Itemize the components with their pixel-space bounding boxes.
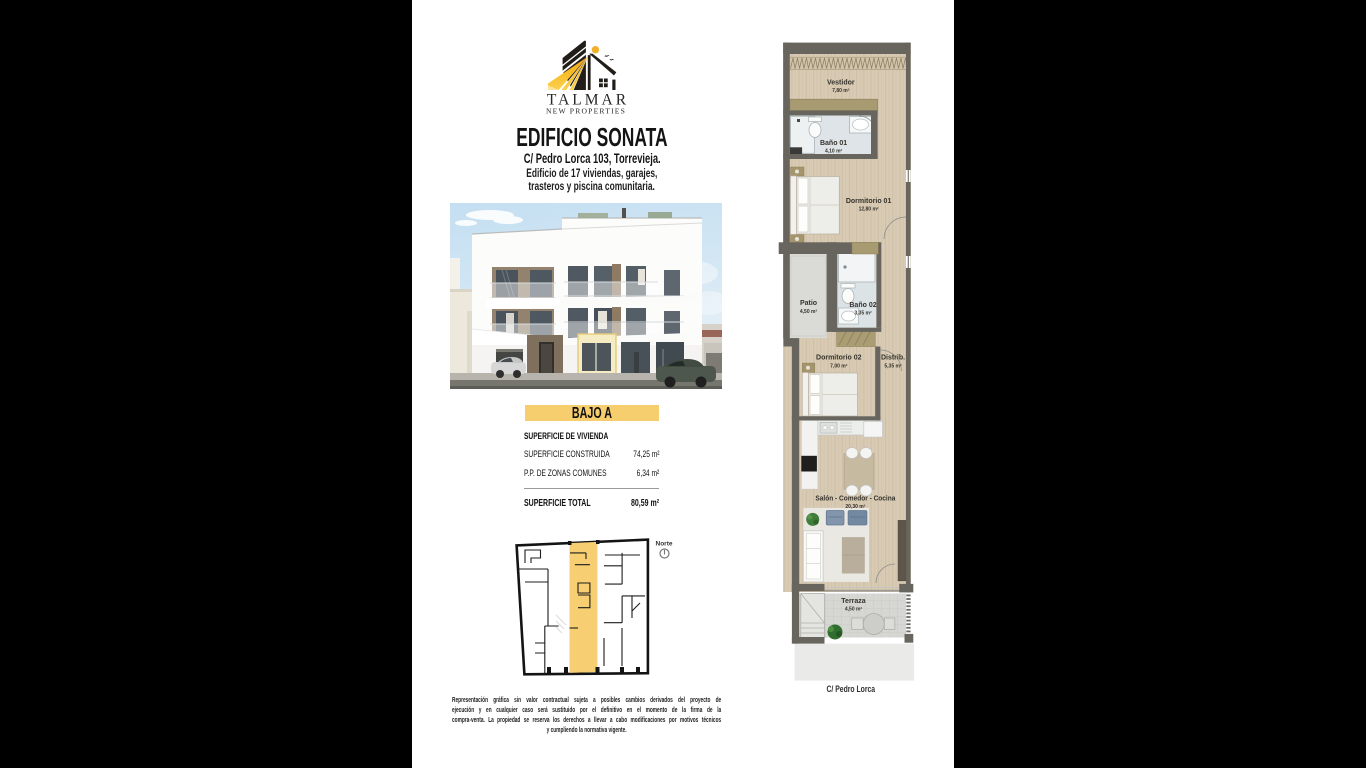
svg-text:Distrib.: Distrib. [881,355,905,362]
svg-text:Patio: Patio [800,300,817,307]
svg-text:7,80 m²: 7,80 m² [832,88,850,94]
svg-text:5,35 m²: 5,35 m² [884,364,902,370]
svg-text:Dormitorio 01: Dormitorio 01 [846,198,892,205]
svg-text:Baño 01: Baño 01 [820,140,847,147]
svg-text:NEW PROPERTIES: NEW PROPERTIES [546,106,626,115]
svg-text:Baño 02: Baño 02 [849,302,876,309]
svg-text:Salón - Comedor - Cocina: Salón - Comedor - Cocina [815,496,895,503]
svg-text:Dormitorio 02: Dormitorio 02 [816,355,862,362]
svg-text:Norte: Norte [656,541,673,548]
svg-text:7,00 m²: 7,00 m² [830,364,848,370]
svg-text:20,30 m²: 20,30 m² [845,504,865,510]
svg-text:4,10 m²: 4,10 m² [825,149,843,155]
svg-text:3,35 m²: 3,35 m² [854,311,872,317]
svg-text:Terraza: Terraza [841,598,865,605]
svg-text:4,50 m²: 4,50 m² [800,309,818,315]
svg-text:4,50 m²: 4,50 m² [845,607,863,613]
svg-text:12,80 m²: 12,80 m² [859,207,879,213]
svg-text:Vestidor: Vestidor [827,80,855,87]
